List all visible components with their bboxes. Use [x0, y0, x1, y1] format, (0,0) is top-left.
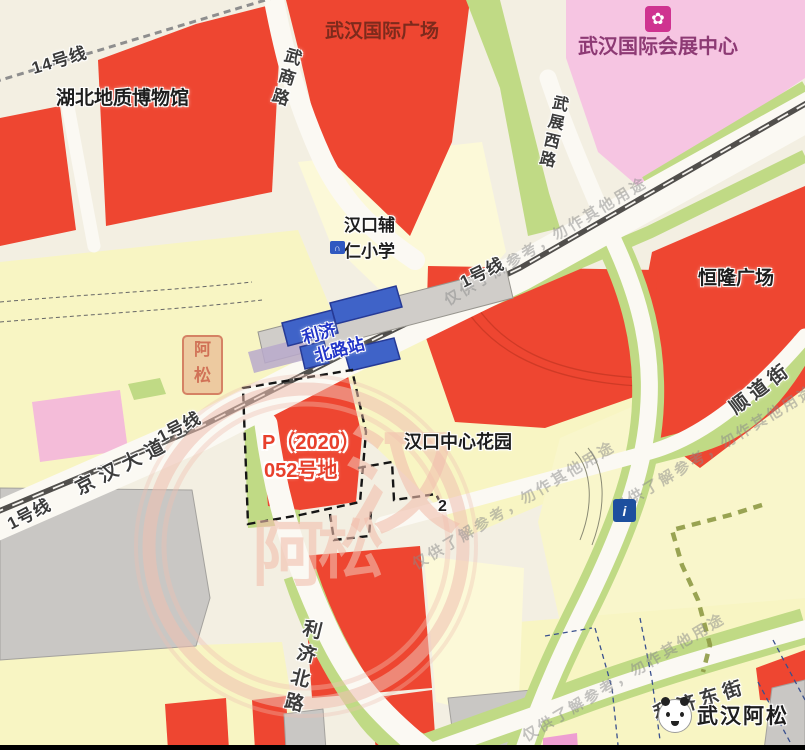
panda-mouth [671, 721, 679, 726]
map-screenshot: 汉 阿 松 仅供了解参考，勿作其他用途 仅供了解参考，勿作其他用途 仅供了解参考… [0, 0, 805, 750]
panda-ear [680, 697, 689, 706]
school-icon: ∩ [330, 241, 345, 254]
parcel-label-line2: 052号地 [264, 457, 360, 485]
watermark-big-char: 松 [318, 496, 384, 592]
label-hanglung-plaza: 恒隆广场 [698, 263, 774, 290]
parcel-label-line1: P（2020） [262, 429, 360, 457]
label-exhibition-center: 武汉国际会展中心 [578, 30, 738, 59]
label-parcel-052: P（2020） 052号地 [262, 429, 360, 485]
seal-char: 阿 [184, 337, 221, 363]
panda-ear [661, 697, 670, 706]
block-museum [98, 2, 282, 226]
exhibition-center-icon: ✿ [645, 6, 671, 32]
panda-eye [666, 712, 670, 717]
parcel-marker-2: 2 [438, 498, 447, 516]
watermark-big-char: 阿 [252, 495, 324, 600]
watermark-seal: 阿 松 [182, 335, 223, 395]
seal-char: 松 [184, 363, 221, 389]
footer-bar [0, 745, 805, 750]
label-central-garden: 汉口中心花园 [404, 428, 512, 454]
label-museum: 湖北地质博物馆 [56, 83, 189, 110]
label-intl-plaza: 武汉国际广场 [325, 16, 439, 43]
label-primary-school: 汉口辅仁小学 [344, 213, 402, 264]
panda-eye [680, 712, 684, 717]
brand-logo-panda [658, 699, 692, 733]
poi-glyph: i [623, 503, 627, 519]
brand-name: 武汉阿松 [697, 700, 789, 730]
poi-icon: i [613, 499, 636, 522]
